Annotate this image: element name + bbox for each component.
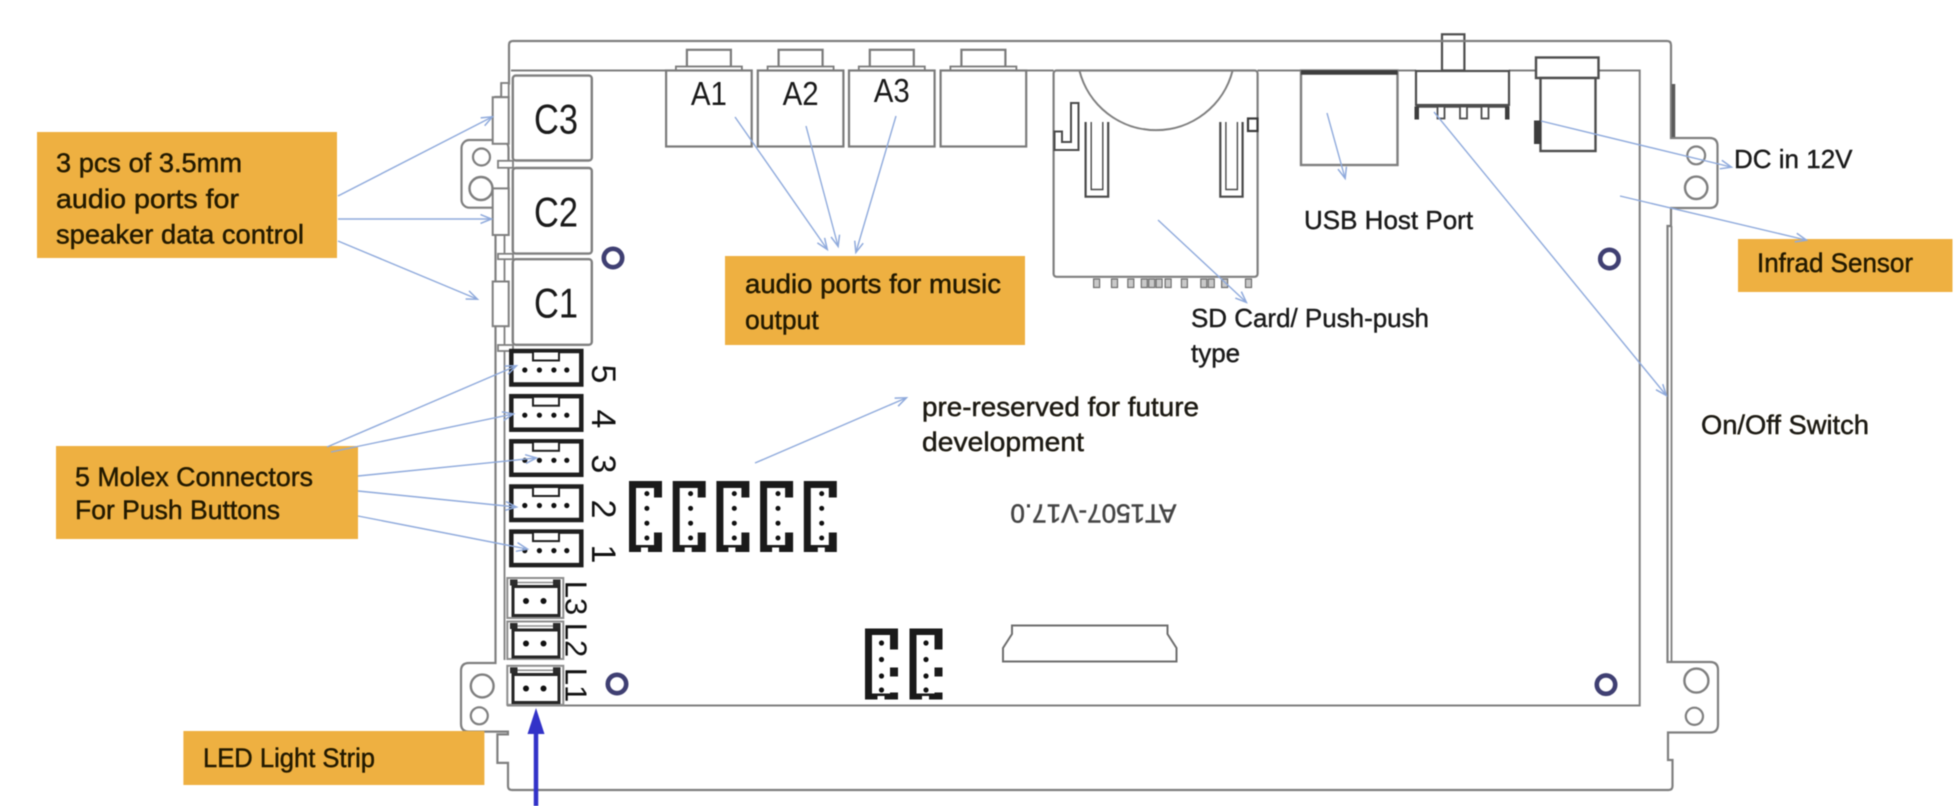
svg-text:On/Off Switch: On/Off Switch [1701, 410, 1869, 440]
svg-text:L2: L2 [559, 623, 594, 657]
svg-text:L3: L3 [559, 581, 594, 615]
svg-text:development: development [922, 427, 1085, 457]
svg-text:DC in 12V: DC in 12V [1734, 144, 1853, 174]
svg-text:A2: A2 [783, 75, 819, 112]
svg-text:5: 5 [584, 365, 622, 384]
svg-text:speaker data control: speaker data control [56, 220, 304, 250]
svg-text:1: 1 [584, 545, 622, 564]
svg-text:type: type [1191, 338, 1240, 368]
svg-text:C1: C1 [534, 280, 578, 327]
svg-text:C3: C3 [534, 96, 578, 143]
svg-text:A1: A1 [691, 75, 727, 112]
svg-text:3: 3 [584, 455, 622, 474]
svg-text:C2: C2 [534, 189, 578, 236]
svg-text:5 Molex Connectors: 5 Molex Connectors [75, 462, 313, 492]
svg-text:audio ports for: audio ports for [56, 184, 239, 214]
svg-text:output: output [745, 305, 819, 335]
svg-text:4: 4 [584, 410, 622, 429]
svg-text:SD Card/ Push-push: SD Card/ Push-push [1191, 303, 1429, 333]
svg-text:For Push Buttons: For Push Buttons [75, 495, 280, 525]
svg-text:A3: A3 [874, 72, 910, 109]
svg-text:USB Host Port: USB Host Port [1304, 205, 1474, 235]
svg-text:Infrad Sensor: Infrad Sensor [1757, 248, 1913, 278]
svg-text:3 pcs of 3.5mm: 3 pcs of 3.5mm [56, 148, 242, 178]
svg-text:L1: L1 [559, 668, 594, 702]
svg-text:AT1507-V17.0: AT1507-V17.0 [1010, 498, 1176, 528]
svg-text:2: 2 [584, 500, 622, 519]
svg-text:pre-reserved for future: pre-reserved for future [922, 392, 1199, 422]
svg-text:audio ports for music: audio ports for music [745, 269, 1001, 299]
svg-text:LED Light Strip: LED Light Strip [203, 743, 375, 773]
